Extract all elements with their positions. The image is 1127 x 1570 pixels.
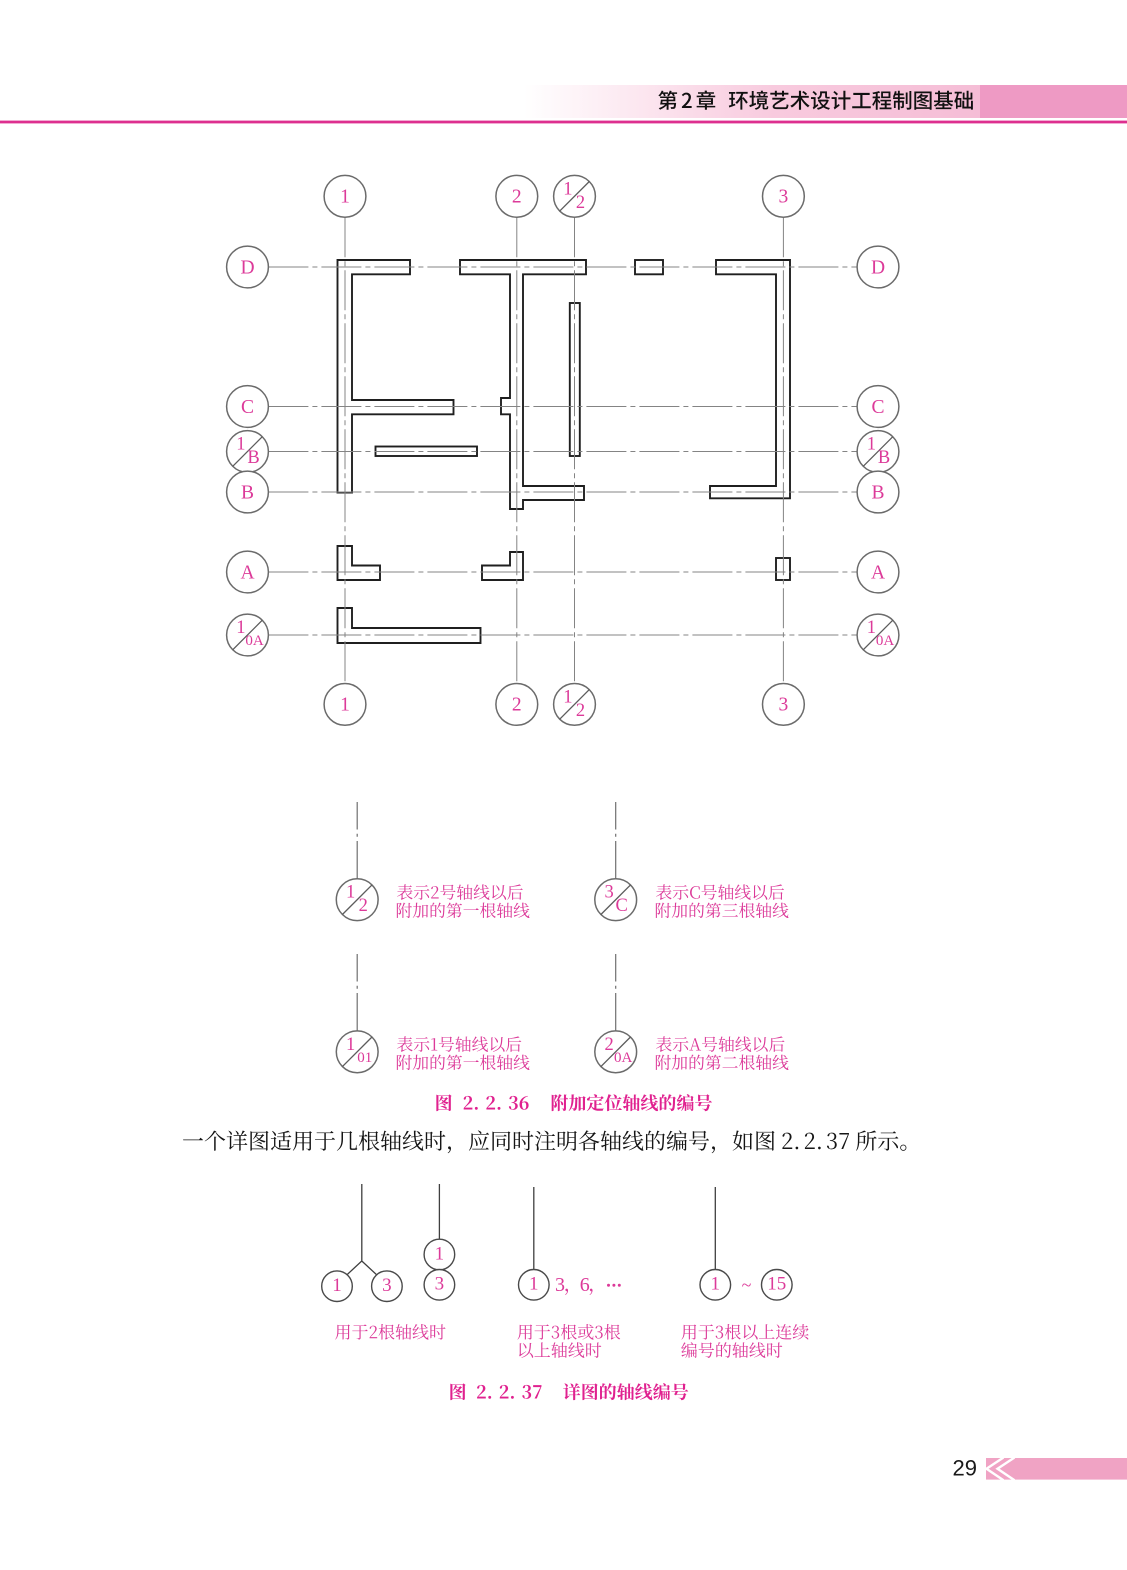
svg-text:15: 15 (767, 1274, 786, 1295)
svg-text:3: 3 (779, 695, 789, 716)
svg-text:3: 3 (382, 1275, 392, 1296)
svg-text:1: 1 (711, 1274, 721, 1295)
svg-text:29: 29 (953, 1456, 977, 1481)
svg-text:B: B (878, 448, 890, 468)
svg-text:C: C (241, 397, 254, 418)
svg-text:C: C (616, 896, 628, 916)
svg-text:B: B (241, 482, 254, 503)
svg-text:1: 1 (867, 618, 876, 638)
svg-text:1: 1 (435, 1243, 445, 1264)
svg-text:1: 1 (563, 687, 572, 707)
svg-text:3: 3 (604, 883, 613, 903)
svg-text:1: 1 (867, 435, 876, 455)
svg-text:1: 1 (236, 618, 245, 638)
svg-text:1: 1 (340, 695, 350, 716)
svg-text:1: 1 (563, 179, 572, 199)
svg-text:0A: 0A (245, 633, 264, 649)
svg-text:3: 3 (555, 1274, 565, 1296)
svg-text:0A: 0A (876, 633, 895, 649)
svg-text:1: 1 (346, 1035, 355, 1055)
svg-text:3: 3 (779, 187, 789, 208)
svg-text:2: 2 (576, 193, 585, 213)
svg-text:1: 1 (346, 883, 355, 903)
svg-text:D: D (240, 257, 254, 278)
svg-text:B: B (871, 482, 884, 503)
svg-text:A: A (871, 562, 885, 583)
svg-text:6: 6 (580, 1274, 590, 1296)
svg-text:~: ~ (742, 1275, 752, 1295)
svg-text:2: 2 (576, 701, 585, 721)
svg-text:1: 1 (529, 1274, 539, 1295)
svg-text:0A: 0A (614, 1050, 633, 1066)
svg-text:1: 1 (332, 1275, 342, 1296)
svg-text:3: 3 (435, 1274, 445, 1295)
svg-text:A: A (240, 562, 254, 583)
svg-text:2: 2 (359, 896, 368, 916)
svg-text:2: 2 (604, 1035, 613, 1055)
svg-text:01: 01 (357, 1050, 372, 1066)
svg-text:D: D (871, 257, 885, 278)
svg-text:2: 2 (512, 695, 522, 716)
svg-text:B: B (247, 448, 259, 468)
svg-text:2: 2 (512, 187, 522, 208)
svg-text:C: C (871, 397, 884, 418)
svg-text:1: 1 (340, 187, 350, 208)
svg-text:1: 1 (236, 435, 245, 455)
